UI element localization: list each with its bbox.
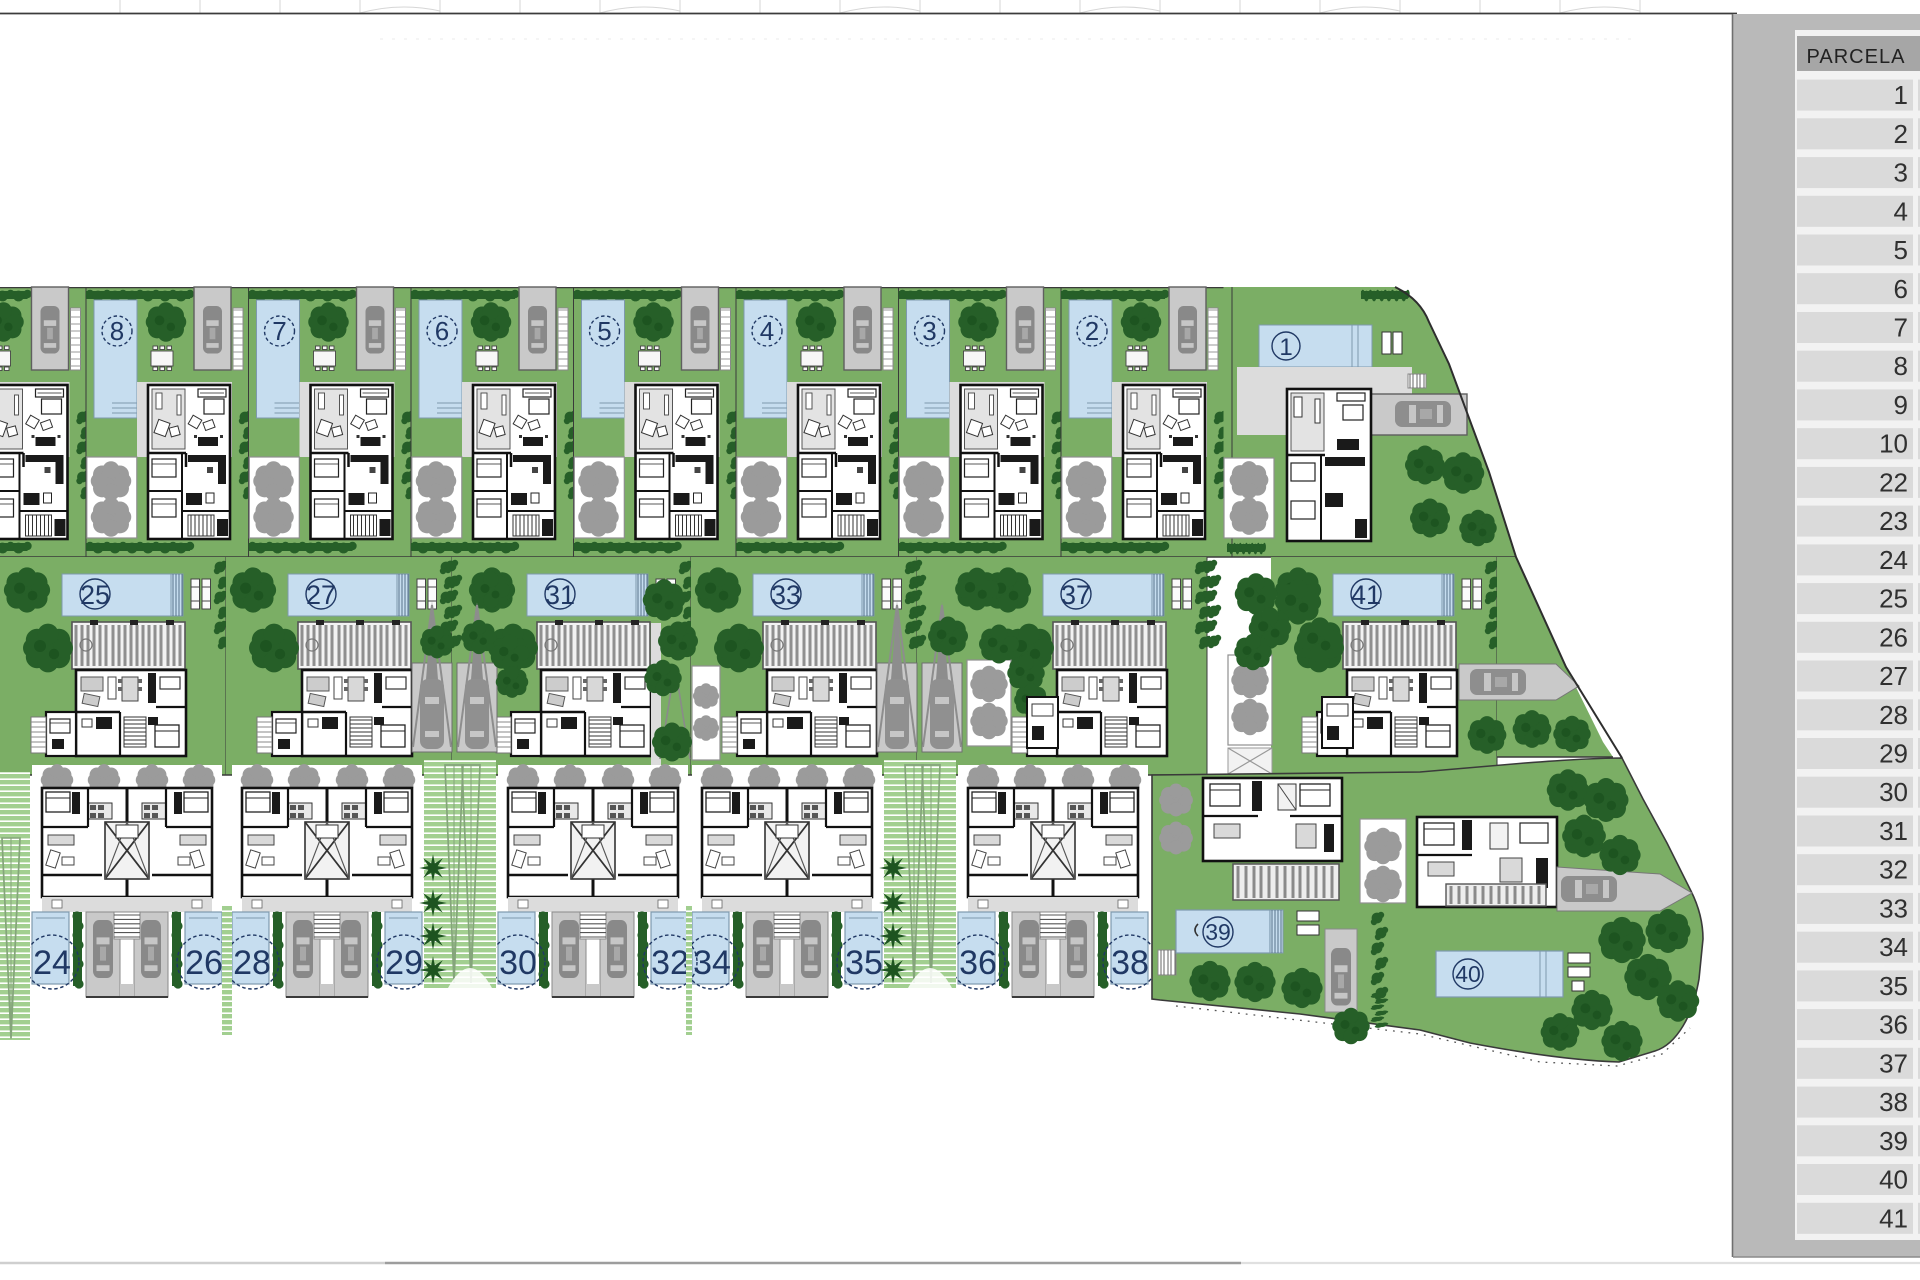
svg-text:36: 36 bbox=[1879, 1010, 1908, 1040]
svg-text:2: 2 bbox=[1894, 119, 1908, 149]
svg-text:38: 38 bbox=[1111, 944, 1149, 982]
svg-text:4: 4 bbox=[760, 316, 774, 346]
svg-text:31: 31 bbox=[1879, 816, 1908, 846]
svg-text:6: 6 bbox=[1894, 274, 1908, 304]
svg-text:8: 8 bbox=[1894, 351, 1908, 381]
svg-text:26: 26 bbox=[185, 944, 223, 982]
svg-text:3: 3 bbox=[1894, 158, 1908, 188]
svg-text:35: 35 bbox=[845, 944, 883, 982]
svg-text:39: 39 bbox=[1879, 1126, 1908, 1156]
svg-text:29: 29 bbox=[1879, 739, 1908, 769]
svg-text:9: 9 bbox=[1894, 390, 1908, 420]
svg-text:24: 24 bbox=[1879, 545, 1908, 575]
svg-text:32: 32 bbox=[651, 944, 689, 982]
svg-text:41: 41 bbox=[1879, 1203, 1908, 1233]
svg-text:10: 10 bbox=[1879, 429, 1908, 459]
svg-text:1: 1 bbox=[1279, 334, 1292, 361]
svg-text:37: 37 bbox=[1879, 1048, 1908, 1078]
svg-text:24: 24 bbox=[33, 944, 71, 982]
svg-text:41: 41 bbox=[1351, 580, 1381, 610]
svg-text:2: 2 bbox=[1085, 316, 1099, 346]
svg-text:1: 1 bbox=[1894, 80, 1908, 110]
svg-text:25: 25 bbox=[80, 580, 110, 610]
svg-text:33: 33 bbox=[1879, 893, 1908, 923]
svg-text:35: 35 bbox=[1879, 971, 1908, 1001]
svg-text:36: 36 bbox=[959, 944, 997, 982]
svg-text:28: 28 bbox=[233, 944, 271, 982]
svg-text:25: 25 bbox=[1879, 584, 1908, 614]
svg-text:33: 33 bbox=[771, 580, 801, 610]
svg-text:30: 30 bbox=[499, 944, 537, 982]
svg-text:27: 27 bbox=[1879, 661, 1908, 691]
svg-text:34: 34 bbox=[693, 944, 731, 982]
svg-text:29: 29 bbox=[385, 944, 423, 982]
svg-text:PARCELA: PARCELA bbox=[1807, 46, 1906, 68]
svg-text:22: 22 bbox=[1879, 467, 1908, 497]
svg-text:26: 26 bbox=[1879, 622, 1908, 652]
svg-text:8: 8 bbox=[110, 316, 124, 346]
svg-text:5: 5 bbox=[1894, 235, 1908, 265]
svg-text:39: 39 bbox=[1205, 919, 1231, 945]
svg-text:38: 38 bbox=[1879, 1087, 1908, 1117]
svg-text:7: 7 bbox=[272, 316, 286, 346]
svg-text:37: 37 bbox=[1061, 580, 1091, 610]
svg-text:6: 6 bbox=[435, 316, 449, 346]
svg-text:32: 32 bbox=[1879, 855, 1908, 885]
svg-text:3: 3 bbox=[922, 316, 936, 346]
svg-text:40: 40 bbox=[1879, 1165, 1908, 1195]
svg-text:30: 30 bbox=[1879, 777, 1908, 807]
svg-text:31: 31 bbox=[545, 580, 575, 610]
svg-text:4: 4 bbox=[1894, 196, 1908, 226]
svg-text:23: 23 bbox=[1879, 506, 1908, 536]
svg-text:28: 28 bbox=[1879, 700, 1908, 730]
svg-text:7: 7 bbox=[1894, 313, 1908, 343]
svg-text:34: 34 bbox=[1879, 932, 1908, 962]
svg-text:40: 40 bbox=[1455, 961, 1481, 987]
svg-text:27: 27 bbox=[306, 580, 336, 610]
svg-text:5: 5 bbox=[597, 316, 611, 346]
